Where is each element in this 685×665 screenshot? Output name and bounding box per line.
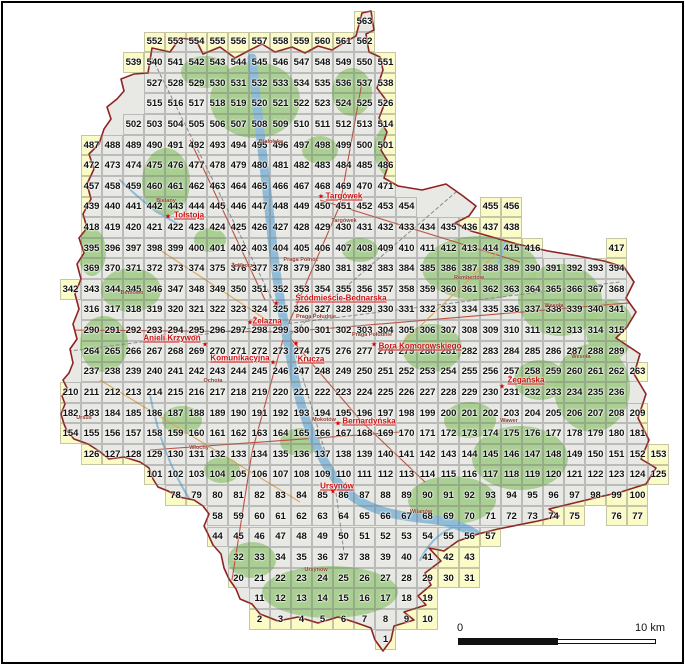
- grid-tile-325[interactable]: 325: [270, 300, 291, 321]
- grid-tile-49[interactable]: 49: [312, 527, 333, 548]
- grid-tile-247[interactable]: 247: [291, 362, 312, 383]
- grid-tile-335[interactable]: 335: [480, 300, 501, 321]
- grid-tile-220[interactable]: 220: [270, 382, 291, 403]
- grid-tile-126[interactable]: 126: [81, 444, 102, 465]
- grid-tile-410[interactable]: 410: [396, 238, 417, 259]
- grid-tile-67[interactable]: 67: [396, 506, 417, 527]
- grid-tile-221[interactable]: 221: [291, 382, 312, 403]
- grid-tile-37[interactable]: 37: [333, 547, 354, 568]
- grid-tile-154[interactable]: 154: [60, 423, 81, 444]
- grid-tile-285[interactable]: 285: [522, 341, 543, 362]
- grid-tile-516[interactable]: 516: [165, 93, 186, 114]
- grid-tile-266[interactable]: 266: [123, 341, 144, 362]
- grid-tile-452[interactable]: 452: [354, 197, 375, 218]
- grid-tile-58[interactable]: 58: [207, 506, 228, 527]
- grid-tile-18[interactable]: 18: [396, 588, 417, 609]
- grid-tile-424[interactable]: 424: [207, 217, 228, 238]
- grid-tile-471[interactable]: 471: [375, 176, 396, 197]
- grid-tile-252[interactable]: 252: [396, 362, 417, 383]
- grid-tile-194[interactable]: 194: [312, 403, 333, 424]
- grid-tile-392[interactable]: 392: [564, 258, 585, 279]
- grid-tile-419[interactable]: 419: [102, 217, 123, 238]
- grid-tile-184[interactable]: 184: [102, 403, 123, 424]
- grid-tile-561[interactable]: 561: [333, 32, 354, 53]
- grid-tile-157[interactable]: 157: [123, 423, 144, 444]
- grid-tile-554[interactable]: 554: [186, 32, 207, 53]
- grid-tile-451[interactable]: 451: [333, 197, 354, 218]
- grid-tile-493[interactable]: 493: [207, 135, 228, 156]
- grid-tile-111[interactable]: 111: [354, 465, 375, 486]
- grid-tile-404[interactable]: 404: [270, 238, 291, 259]
- grid-tile-400[interactable]: 400: [186, 238, 207, 259]
- grid-tile-83[interactable]: 83: [270, 485, 291, 506]
- grid-tile-300[interactable]: 300: [291, 320, 312, 341]
- grid-tile-497[interactable]: 497: [291, 135, 312, 156]
- grid-tile-56[interactable]: 56: [459, 527, 480, 548]
- grid-tile-339[interactable]: 339: [564, 300, 585, 321]
- grid-tile-231[interactable]: 231: [501, 382, 522, 403]
- grid-tile-303[interactable]: 303: [354, 320, 375, 341]
- grid-tile-510[interactable]: 510: [291, 114, 312, 135]
- grid-tile-19[interactable]: 19: [417, 588, 438, 609]
- grid-tile-343[interactable]: 343: [81, 279, 102, 300]
- grid-tile-153[interactable]: 153: [648, 444, 669, 465]
- grid-tile-199[interactable]: 199: [417, 403, 438, 424]
- grid-tile-559[interactable]: 559: [291, 32, 312, 53]
- grid-tile-347[interactable]: 347: [165, 279, 186, 300]
- grid-tile-508[interactable]: 508: [249, 114, 270, 135]
- grid-tile-260[interactable]: 260: [564, 362, 585, 383]
- grid-tile-180[interactable]: 180: [606, 423, 627, 444]
- grid-tile-185[interactable]: 185: [123, 403, 144, 424]
- grid-tile-494[interactable]: 494: [228, 135, 249, 156]
- grid-tile-354[interactable]: 354: [312, 279, 333, 300]
- grid-tile-483[interactable]: 483: [312, 155, 333, 176]
- grid-tile-340[interactable]: 340: [585, 300, 606, 321]
- grid-tile-275[interactable]: 275: [312, 341, 333, 362]
- grid-tile-227[interactable]: 227: [417, 382, 438, 403]
- grid-tile-1[interactable]: 1: [375, 630, 396, 651]
- grid-tile-30[interactable]: 30: [438, 568, 459, 589]
- grid-tile-77[interactable]: 77: [627, 506, 648, 527]
- grid-tile-225[interactable]: 225: [375, 382, 396, 403]
- grid-tile-152[interactable]: 152: [627, 444, 648, 465]
- grid-tile-101[interactable]: 101: [144, 465, 165, 486]
- grid-tile-492[interactable]: 492: [186, 135, 207, 156]
- grid-tile-362[interactable]: 362: [480, 279, 501, 300]
- grid-tile-95[interactable]: 95: [522, 485, 543, 506]
- grid-tile-329[interactable]: 329: [354, 300, 375, 321]
- grid-tile-167[interactable]: 167: [333, 423, 354, 444]
- grid-tile-115[interactable]: 115: [438, 465, 459, 486]
- grid-tile-274[interactable]: 274: [291, 341, 312, 362]
- grid-tile-377[interactable]: 377: [249, 258, 270, 279]
- grid-tile-558[interactable]: 558: [270, 32, 291, 53]
- grid-tile-109[interactable]: 109: [312, 465, 333, 486]
- grid-tile-487[interactable]: 487: [81, 135, 102, 156]
- grid-tile-381[interactable]: 381: [333, 258, 354, 279]
- grid-tile-138[interactable]: 138: [333, 444, 354, 465]
- grid-tile-70[interactable]: 70: [459, 506, 480, 527]
- grid-tile-500[interactable]: 500: [354, 135, 375, 156]
- grid-tile-476[interactable]: 476: [165, 155, 186, 176]
- grid-tile-311[interactable]: 311: [522, 320, 543, 341]
- grid-tile-546[interactable]: 546: [270, 52, 291, 73]
- grid-tile-442[interactable]: 442: [144, 197, 165, 218]
- grid-tile-239[interactable]: 239: [123, 362, 144, 383]
- grid-tile-218[interactable]: 218: [228, 382, 249, 403]
- grid-tile-519[interactable]: 519: [228, 93, 249, 114]
- grid-tile-31[interactable]: 31: [459, 568, 480, 589]
- grid-tile-213[interactable]: 213: [123, 382, 144, 403]
- grid-tile-299[interactable]: 299: [270, 320, 291, 341]
- grid-tile-108[interactable]: 108: [291, 465, 312, 486]
- grid-tile-429[interactable]: 429: [312, 217, 333, 238]
- grid-tile-216[interactable]: 216: [186, 382, 207, 403]
- grid-tile-464[interactable]: 464: [228, 176, 249, 197]
- grid-tile-124[interactable]: 124: [627, 465, 648, 486]
- grid-tile-552[interactable]: 552: [144, 32, 165, 53]
- grid-tile-136[interactable]: 136: [291, 444, 312, 465]
- grid-tile-89[interactable]: 89: [396, 485, 417, 506]
- grid-tile-182[interactable]: 182: [60, 403, 81, 424]
- grid-tile-457[interactable]: 457: [81, 176, 102, 197]
- grid-tile-119[interactable]: 119: [522, 465, 543, 486]
- grid-tile-496[interactable]: 496: [270, 135, 291, 156]
- grid-tile-223[interactable]: 223: [333, 382, 354, 403]
- grid-tile-186[interactable]: 186: [144, 403, 165, 424]
- grid-tile-2[interactable]: 2: [249, 609, 270, 630]
- grid-tile-257[interactable]: 257: [501, 362, 522, 383]
- grid-tile-348[interactable]: 348: [186, 279, 207, 300]
- grid-tile-309[interactable]: 309: [480, 320, 501, 341]
- grid-tile-469[interactable]: 469: [333, 176, 354, 197]
- grid-tile-71[interactable]: 71: [480, 506, 501, 527]
- grid-tile-322[interactable]: 322: [207, 300, 228, 321]
- grid-tile-524[interactable]: 524: [333, 93, 354, 114]
- grid-tile-473[interactable]: 473: [102, 155, 123, 176]
- grid-tile-286[interactable]: 286: [543, 341, 564, 362]
- grid-tile-162[interactable]: 162: [228, 423, 249, 444]
- grid-tile-11[interactable]: 11: [249, 588, 270, 609]
- grid-tile-474[interactable]: 474: [123, 155, 144, 176]
- grid-tile-422[interactable]: 422: [165, 217, 186, 238]
- grid-tile-441[interactable]: 441: [123, 197, 144, 218]
- grid-tile-159[interactable]: 159: [165, 423, 186, 444]
- grid-tile-458[interactable]: 458: [102, 176, 123, 197]
- grid-tile-334[interactable]: 334: [459, 300, 480, 321]
- grid-tile-144[interactable]: 144: [459, 444, 480, 465]
- grid-tile-296[interactable]: 296: [207, 320, 228, 341]
- grid-tile-289[interactable]: 289: [606, 341, 627, 362]
- grid-tile-498[interactable]: 498: [312, 135, 333, 156]
- grid-tile-287[interactable]: 287: [564, 341, 585, 362]
- grid-tile-263[interactable]: 263: [627, 362, 648, 383]
- grid-tile-460[interactable]: 460: [144, 176, 165, 197]
- grid-tile-489[interactable]: 489: [123, 135, 144, 156]
- grid-tile-326[interactable]: 326: [291, 300, 312, 321]
- grid-tile-463[interactable]: 463: [207, 176, 228, 197]
- grid-tile-183[interactable]: 183: [81, 403, 102, 424]
- grid-tile-379[interactable]: 379: [291, 258, 312, 279]
- grid-tile-383[interactable]: 383: [375, 258, 396, 279]
- grid-tile-439[interactable]: 439: [81, 197, 102, 218]
- grid-tile-72[interactable]: 72: [501, 506, 522, 527]
- grid-tile-509[interactable]: 509: [270, 114, 291, 135]
- grid-tile-129[interactable]: 129: [144, 444, 165, 465]
- grid-tile-434[interactable]: 434: [417, 217, 438, 238]
- grid-tile-25[interactable]: 25: [333, 568, 354, 589]
- grid-tile-331[interactable]: 331: [396, 300, 417, 321]
- grid-tile-521[interactable]: 521: [270, 93, 291, 114]
- grid-tile-538[interactable]: 538: [375, 73, 396, 94]
- grid-tile-59[interactable]: 59: [228, 506, 249, 527]
- grid-tile-459[interactable]: 459: [123, 176, 144, 197]
- grid-tile-241[interactable]: 241: [165, 362, 186, 383]
- grid-tile-389[interactable]: 389: [501, 258, 522, 279]
- grid-tile-110[interactable]: 110: [333, 465, 354, 486]
- grid-tile-60[interactable]: 60: [249, 506, 270, 527]
- grid-tile-539[interactable]: 539: [123, 52, 144, 73]
- grid-tile-438[interactable]: 438: [501, 217, 522, 238]
- grid-tile-295[interactable]: 295: [186, 320, 207, 341]
- grid-tile-523[interactable]: 523: [312, 93, 333, 114]
- grid-tile-380[interactable]: 380: [312, 258, 333, 279]
- grid-tile-209[interactable]: 209: [627, 403, 648, 424]
- grid-tile-540[interactable]: 540: [144, 52, 165, 73]
- grid-tile-244[interactable]: 244: [228, 362, 249, 383]
- grid-tile-43[interactable]: 43: [459, 547, 480, 568]
- grid-tile-484[interactable]: 484: [333, 155, 354, 176]
- grid-tile-461[interactable]: 461: [165, 176, 186, 197]
- grid-tile-90[interactable]: 90: [417, 485, 438, 506]
- grid-tile-226[interactable]: 226: [396, 382, 417, 403]
- grid-tile-166[interactable]: 166: [312, 423, 333, 444]
- grid-tile-16[interactable]: 16: [354, 588, 375, 609]
- grid-tile-468[interactable]: 468: [312, 176, 333, 197]
- grid-tile-132[interactable]: 132: [207, 444, 228, 465]
- grid-tile-402[interactable]: 402: [228, 238, 249, 259]
- grid-tile-423[interactable]: 423: [186, 217, 207, 238]
- grid-tile-190[interactable]: 190: [228, 403, 249, 424]
- grid-tile-73[interactable]: 73: [522, 506, 543, 527]
- grid-tile-390[interactable]: 390: [522, 258, 543, 279]
- grid-tile-175[interactable]: 175: [501, 423, 522, 444]
- grid-tile-378[interactable]: 378: [270, 258, 291, 279]
- grid-tile-543[interactable]: 543: [207, 52, 228, 73]
- grid-tile-368[interactable]: 368: [606, 279, 627, 300]
- grid-tile-28[interactable]: 28: [396, 568, 417, 589]
- grid-tile-40[interactable]: 40: [396, 547, 417, 568]
- grid-tile-38[interactable]: 38: [354, 547, 375, 568]
- grid-tile-479[interactable]: 479: [228, 155, 249, 176]
- grid-tile-53[interactable]: 53: [396, 527, 417, 548]
- grid-tile-147[interactable]: 147: [522, 444, 543, 465]
- grid-tile-170[interactable]: 170: [396, 423, 417, 444]
- grid-tile-262[interactable]: 262: [606, 362, 627, 383]
- grid-tile-8[interactable]: 8: [375, 609, 396, 630]
- grid-tile-57[interactable]: 57: [480, 527, 501, 548]
- grid-tile-426[interactable]: 426: [249, 217, 270, 238]
- grid-tile-292[interactable]: 292: [123, 320, 144, 341]
- grid-tile-321[interactable]: 321: [186, 300, 207, 321]
- grid-tile-122[interactable]: 122: [585, 465, 606, 486]
- grid-tile-447[interactable]: 447: [249, 197, 270, 218]
- grid-tile-55[interactable]: 55: [438, 527, 459, 548]
- grid-tile-411[interactable]: 411: [417, 238, 438, 259]
- grid-tile-304[interactable]: 304: [375, 320, 396, 341]
- grid-tile-549[interactable]: 549: [333, 52, 354, 73]
- grid-tile-359[interactable]: 359: [417, 279, 438, 300]
- grid-tile-161[interactable]: 161: [207, 423, 228, 444]
- grid-tile-281[interactable]: 281: [438, 341, 459, 362]
- grid-tile-12[interactable]: 12: [270, 588, 291, 609]
- grid-tile-313[interactable]: 313: [564, 320, 585, 341]
- grid-tile-310[interactable]: 310: [501, 320, 522, 341]
- grid-tile-42[interactable]: 42: [438, 547, 459, 568]
- grid-tile-224[interactable]: 224: [354, 382, 375, 403]
- grid-tile-15[interactable]: 15: [333, 588, 354, 609]
- grid-tile-330[interactable]: 330: [375, 300, 396, 321]
- grid-tile-76[interactable]: 76: [606, 506, 627, 527]
- grid-tile-533[interactable]: 533: [270, 73, 291, 94]
- grid-tile-370[interactable]: 370: [102, 258, 123, 279]
- grid-tile-288[interactable]: 288: [585, 341, 606, 362]
- grid-tile-177[interactable]: 177: [543, 423, 564, 444]
- grid-tile-344[interactable]: 344: [102, 279, 123, 300]
- grid-tile-4[interactable]: 4: [291, 609, 312, 630]
- grid-tile-47[interactable]: 47: [270, 527, 291, 548]
- grid-tile-265[interactable]: 265: [102, 341, 123, 362]
- grid-tile-249[interactable]: 249: [333, 362, 354, 383]
- grid-tile-145[interactable]: 145: [480, 444, 501, 465]
- grid-tile-160[interactable]: 160: [186, 423, 207, 444]
- grid-tile-143[interactable]: 143: [438, 444, 459, 465]
- grid-tile-294[interactable]: 294: [165, 320, 186, 341]
- grid-tile-532[interactable]: 532: [249, 73, 270, 94]
- grid-tile-217[interactable]: 217: [207, 382, 228, 403]
- grid-tile-131[interactable]: 131: [186, 444, 207, 465]
- grid-tile-351[interactable]: 351: [249, 279, 270, 300]
- grid-tile-54[interactable]: 54: [417, 527, 438, 548]
- grid-tile-243[interactable]: 243: [207, 362, 228, 383]
- grid-tile-86[interactable]: 86: [333, 485, 354, 506]
- grid-tile-491[interactable]: 491: [165, 135, 186, 156]
- grid-tile-155[interactable]: 155: [81, 423, 102, 444]
- grid-tile-323[interactable]: 323: [228, 300, 249, 321]
- grid-tile-520[interactable]: 520: [249, 93, 270, 114]
- grid-tile-272[interactable]: 272: [249, 341, 270, 362]
- grid-tile-530[interactable]: 530: [207, 73, 228, 94]
- grid-tile-34[interactable]: 34: [270, 547, 291, 568]
- grid-tile-163[interactable]: 163: [249, 423, 270, 444]
- grid-tile-93[interactable]: 93: [480, 485, 501, 506]
- grid-tile-417[interactable]: 417: [606, 238, 627, 259]
- grid-tile-408[interactable]: 408: [354, 238, 375, 259]
- grid-tile-477[interactable]: 477: [186, 155, 207, 176]
- grid-tile-61[interactable]: 61: [270, 506, 291, 527]
- grid-tile-297[interactable]: 297: [228, 320, 249, 341]
- grid-tile-279[interactable]: 279: [396, 341, 417, 362]
- grid-tile-357[interactable]: 357: [375, 279, 396, 300]
- grid-tile-448[interactable]: 448: [270, 197, 291, 218]
- grid-tile-245[interactable]: 245: [249, 362, 270, 383]
- grid-tile-486[interactable]: 486: [375, 155, 396, 176]
- grid-tile-203[interactable]: 203: [501, 403, 522, 424]
- grid-tile-375[interactable]: 375: [207, 258, 228, 279]
- grid-tile-146[interactable]: 146: [501, 444, 522, 465]
- grid-tile-46[interactable]: 46: [249, 527, 270, 548]
- grid-tile-393[interactable]: 393: [585, 258, 606, 279]
- grid-tile-495[interactable]: 495: [249, 135, 270, 156]
- grid-tile-384[interactable]: 384: [396, 258, 417, 279]
- grid-tile-80[interactable]: 80: [207, 485, 228, 506]
- grid-tile-501[interactable]: 501: [375, 135, 396, 156]
- grid-tile-187[interactable]: 187: [165, 403, 186, 424]
- grid-tile-238[interactable]: 238: [102, 362, 123, 383]
- grid-tile-388[interactable]: 388: [480, 258, 501, 279]
- grid-tile-51[interactable]: 51: [354, 527, 375, 548]
- grid-tile-302[interactable]: 302: [333, 320, 354, 341]
- grid-tile-196[interactable]: 196: [354, 403, 375, 424]
- grid-tile-531[interactable]: 531: [228, 73, 249, 94]
- grid-tile-201[interactable]: 201: [459, 403, 480, 424]
- grid-tile-26[interactable]: 26: [354, 568, 375, 589]
- grid-tile-64[interactable]: 64: [333, 506, 354, 527]
- grid-tile-505[interactable]: 505: [186, 114, 207, 135]
- grid-tile-528[interactable]: 528: [165, 73, 186, 94]
- grid-tile-280[interactable]: 280: [417, 341, 438, 362]
- grid-tile-373[interactable]: 373: [165, 258, 186, 279]
- grid-tile-230[interactable]: 230: [480, 382, 501, 403]
- grid-tile-104[interactable]: 104: [207, 465, 228, 486]
- grid-tile-358[interactable]: 358: [396, 279, 417, 300]
- grid-tile-550[interactable]: 550: [354, 52, 375, 73]
- grid-tile-125[interactable]: 125: [648, 465, 669, 486]
- grid-tile-171[interactable]: 171: [417, 423, 438, 444]
- grid-tile-142[interactable]: 142: [417, 444, 438, 465]
- grid-tile-120[interactable]: 120: [543, 465, 564, 486]
- grid-tile-544[interactable]: 544: [228, 52, 249, 73]
- grid-tile-428[interactable]: 428: [291, 217, 312, 238]
- grid-tile-522[interactable]: 522: [291, 93, 312, 114]
- grid-tile-242[interactable]: 242: [186, 362, 207, 383]
- grid-tile-360[interactable]: 360: [438, 279, 459, 300]
- grid-tile-134[interactable]: 134: [249, 444, 270, 465]
- grid-tile-391[interactable]: 391: [543, 258, 564, 279]
- grid-tile-7[interactable]: 7: [354, 609, 375, 630]
- grid-tile-363[interactable]: 363: [501, 279, 522, 300]
- grid-tile-372[interactable]: 372: [144, 258, 165, 279]
- grid-tile-151[interactable]: 151: [606, 444, 627, 465]
- grid-tile-113[interactable]: 113: [396, 465, 417, 486]
- grid-tile-407[interactable]: 407: [333, 238, 354, 259]
- grid-tile-234[interactable]: 234: [564, 382, 585, 403]
- grid-tile-511[interactable]: 511: [312, 114, 333, 135]
- grid-tile-504[interactable]: 504: [165, 114, 186, 135]
- grid-tile-455[interactable]: 455: [480, 197, 501, 218]
- grid-tile-421[interactable]: 421: [144, 217, 165, 238]
- grid-tile-264[interactable]: 264: [81, 341, 102, 362]
- grid-tile-133[interactable]: 133: [228, 444, 249, 465]
- grid-tile-512[interactable]: 512: [333, 114, 354, 135]
- grid-tile-371[interactable]: 371: [123, 258, 144, 279]
- grid-tile-488[interactable]: 488: [102, 135, 123, 156]
- grid-tile-398[interactable]: 398: [144, 238, 165, 259]
- grid-tile-327[interactable]: 327: [312, 300, 333, 321]
- grid-tile-445[interactable]: 445: [207, 197, 228, 218]
- grid-tile-341[interactable]: 341: [606, 300, 627, 321]
